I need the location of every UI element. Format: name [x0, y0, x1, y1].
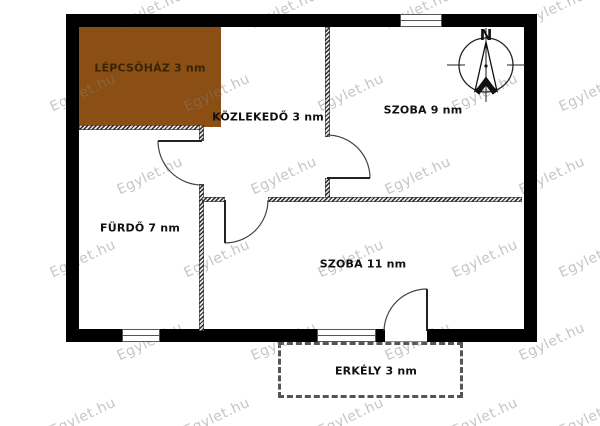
watermark: Egylet.hu	[557, 395, 600, 426]
window-bathroom	[122, 329, 160, 342]
watermark: Egylet.hu	[316, 395, 387, 426]
door-bathroom	[158, 141, 202, 185]
wall-bathroom-room11	[199, 184, 204, 331]
wall-left	[66, 14, 79, 342]
door-swing-arc	[384, 289, 427, 331]
watermark: Egylet.hu	[182, 395, 253, 426]
wall-hall-room9-upper	[325, 27, 330, 137]
room-label-staircase: LÉPCSŐHÁZ 3 nm	[94, 62, 205, 75]
room-label-room9: SZOBA 9 nm	[384, 104, 463, 117]
room-label-balcony: ERKÉLY 3 nm	[335, 365, 417, 378]
watermark: Egylet.hu	[48, 395, 119, 426]
watermark: Egylet.hu	[383, 154, 454, 198]
wall-room9-room11	[268, 197, 522, 202]
window-room9	[400, 14, 442, 27]
wall-bathroom-hall-upper	[199, 125, 204, 141]
compass-circle	[459, 38, 513, 92]
watermark: Egylet.hu	[557, 237, 600, 281]
door-room11	[225, 200, 268, 243]
watermark: Egylet.hu	[48, 237, 119, 281]
watermark: Egylet.hu	[450, 237, 521, 281]
room-label-bathroom: FÜRDŐ 7 nm	[100, 222, 180, 235]
compass-north-label: N	[480, 26, 493, 44]
wall-top	[66, 14, 537, 27]
door-room9	[327, 135, 370, 178]
room-label-room11: SZOBA 11 nm	[320, 258, 407, 271]
door-swing-arc	[158, 141, 202, 185]
balcony-door-opening	[385, 329, 427, 342]
door-balcony	[384, 289, 427, 331]
staircase-area	[79, 27, 221, 127]
door-swing-arc	[225, 200, 268, 243]
window-room11	[317, 329, 376, 342]
floor-plan: Egylet.huEgylet.huEgylet.huEgylet.huEgyl…	[0, 0, 600, 426]
watermark: Egylet.hu	[450, 395, 521, 426]
compass-needle-tail	[477, 81, 495, 93]
compass-needle	[475, 42, 497, 91]
room-label-hall: KÖZLEKEDŐ 3 nm	[212, 111, 324, 124]
door-swing-arc	[327, 135, 370, 178]
watermark: Egylet.hu	[557, 71, 600, 115]
watermark: Egylet.hu	[115, 154, 186, 198]
wall-staircase-bathroom	[79, 125, 202, 130]
watermark: Egylet.hu	[249, 154, 320, 198]
compass-north-indicator: N	[447, 26, 525, 102]
wall-right	[524, 14, 537, 342]
watermark: Egylet.hu	[115, 320, 186, 364]
wall-hall-room11-left	[202, 197, 225, 202]
compass-center-dot	[484, 64, 487, 67]
watermark: Egylet.hu	[182, 237, 253, 281]
